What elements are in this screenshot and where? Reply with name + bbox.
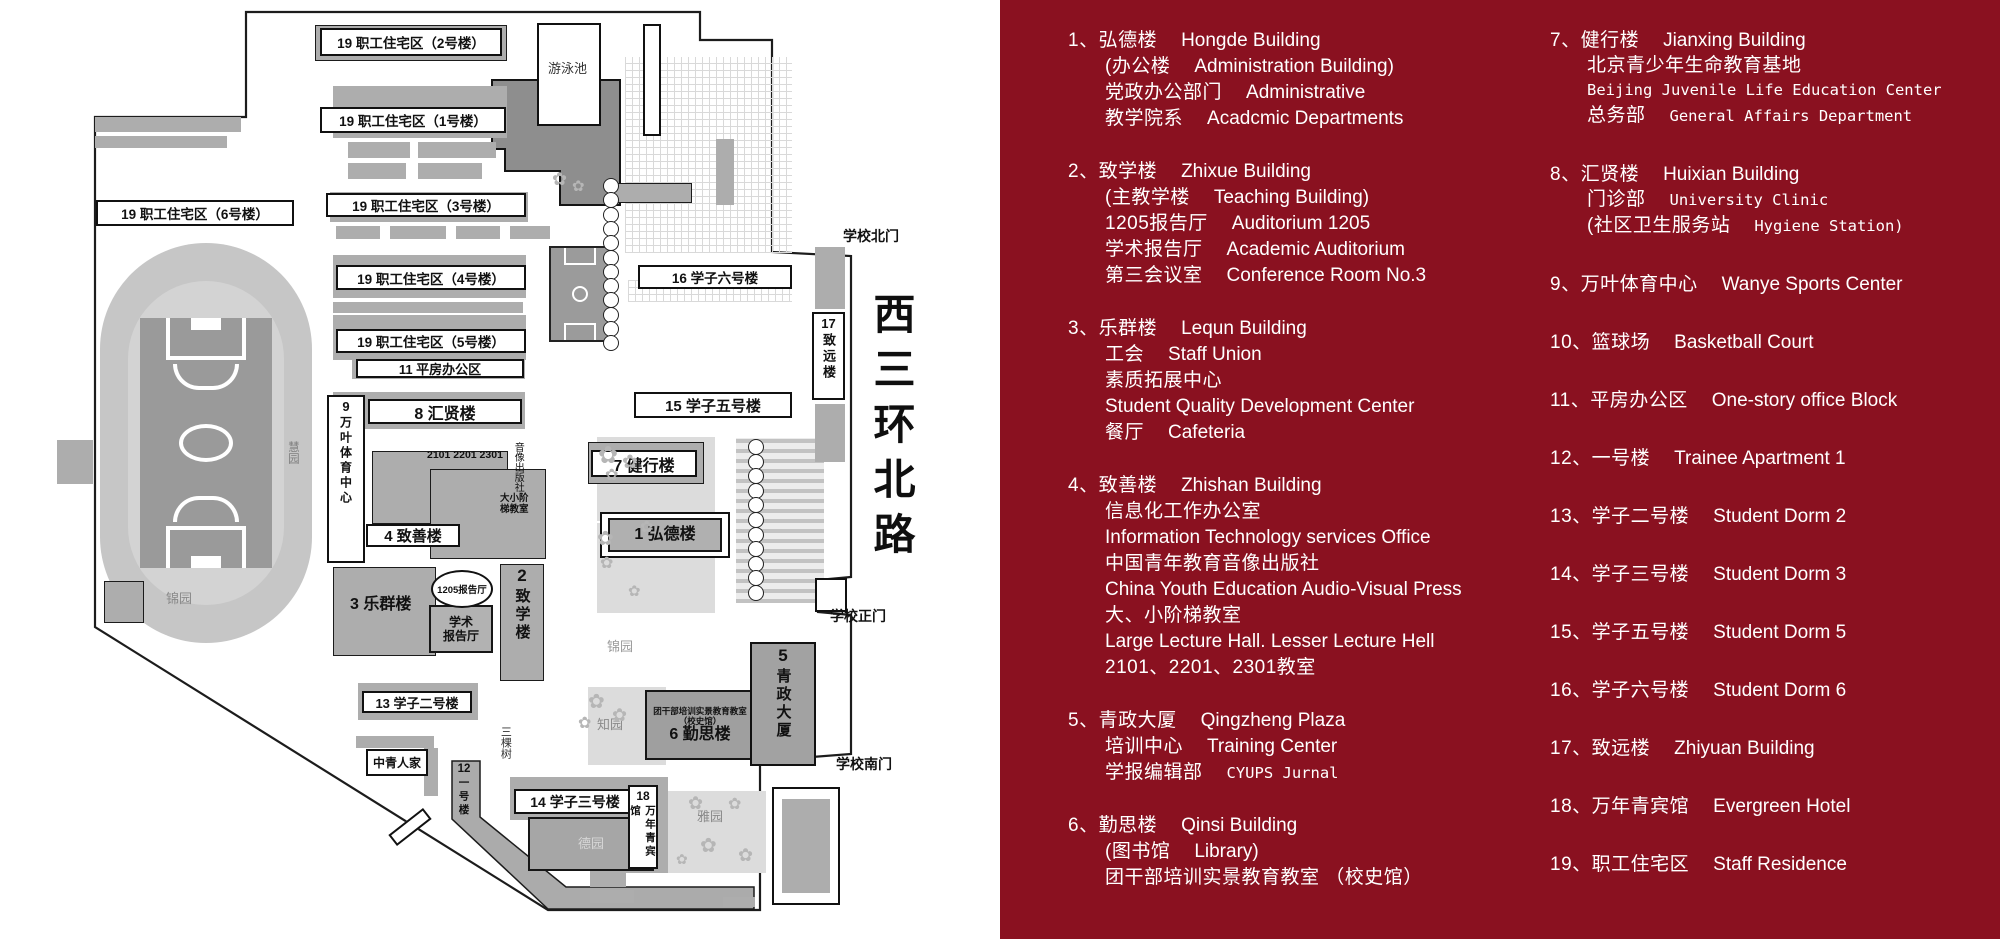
flower: ✿ [640,520,653,536]
legend-text-cn: 培训中心 [1105,736,1183,757]
label-dorm6: 16 学子六号楼 [638,265,792,289]
legend-item-8-huixian: 8、汇贤楼Huixian Building门诊部University Clini… [1550,162,1994,239]
legend-text-en: University Clinic [1670,191,1829,209]
legend-line: China Youth Education Audio-Visual Press [1068,577,1542,603]
flower: ✿ [578,716,591,732]
building-block [815,247,845,309]
tree-bubble [748,468,764,484]
flower: ✿ [700,836,717,856]
legend-text-cn: 1、弘德楼 [1068,30,1157,51]
legend-text-en: Staff Residence [1713,854,1847,875]
legend-line: 培训中心Training Center [1068,734,1542,760]
legend-text-cn: (社区卫生服务站 [1587,215,1730,236]
legend-text-en: Beijing Juvenile Life Education Center [1587,81,1942,99]
legend-line: 1、弘德楼Hongde Building [1068,28,1542,54]
campus-map: 19 职工住宅区（2号楼）19 职工住宅区（1号楼）19 职工住宅区（3号楼）1… [0,0,1000,939]
legend-line: 6、勤思楼Qinsi Building [1068,813,1542,839]
flower: ✿ [688,794,703,812]
label-dorm2: 13 学子二号楼 [362,691,472,713]
legend-line: 11、平房办公区One-story office Block [1550,388,1994,413]
legend-line: 学术报告厅Academic Auditorium [1068,237,1542,263]
legend-text-en: Qinsi Building [1181,815,1297,836]
slab [643,24,661,136]
penalty-box [166,318,246,360]
label-staff-residence-2: 19 职工住宅区（2号楼） [320,28,502,56]
tree-bubble [603,335,619,351]
legend-text-cn: (办公楼 [1105,56,1170,77]
legend-text-cn: 大、小阶梯教室 [1105,605,1242,626]
av-press-label: 音像出版社 [512,442,523,492]
road-label: 西三环北路 [868,292,915,567]
legend-line: Large Lecture Hall. Lesser Lecture Hell [1068,629,1542,655]
label-huixian: 8 汇贤楼 [368,399,522,424]
legend-item-15-dorm5: 15、学子五号楼Student Dorm 5 [1550,620,1994,645]
flower: ✿ [628,584,641,599]
legend-text-cn: 15、学子五号楼 [1550,622,1689,643]
building-number: 2 [517,566,526,586]
legend-text-en: Student Dorm 6 [1713,680,1846,701]
building-block [590,890,634,903]
legend-text-en: Cafeteria [1168,422,1245,443]
legend-text-cn: 11、平房办公区 [1550,390,1688,411]
legend-line: 学报编辑部CYUPS Jurnal [1068,760,1542,786]
tree-bubble [748,556,764,572]
tree-bubble [748,497,764,513]
building-name-vertical: 万年青宾馆 [628,805,658,867]
building-block [57,440,93,484]
legend-line: Information Technology services Office [1068,525,1542,551]
label-staff-residence-3: 19 职工住宅区（3号楼） [326,193,526,217]
legend-text-en: Evergreen Hotel [1713,796,1850,817]
tree-bubble [603,292,619,308]
tree-bubble [603,192,619,208]
label-wanye-sports: 9万叶体育中心 [327,395,365,563]
legend-item-4-zhishan: 4、致善楼Zhishan Building信息化工作办公室Information… [1068,473,1542,681]
building-number: 18 [636,789,649,803]
label-zhongqing-home: 中青人家 [366,749,428,776]
tree-bubble-column [748,439,762,600]
legend-line: 15、学子五号楼Student Dorm 5 [1550,620,1994,645]
legend-item-7-jianxing: 7、健行楼Jianxing Building北京青少年生命教育基地Beijing… [1550,28,1994,129]
penalty-box [166,526,246,568]
label-apartment1: 12一号楼 [450,761,478,825]
flower: ✿ [552,170,567,188]
building-block [815,404,845,462]
legend-text-en: Library) [1194,841,1258,862]
three-trees-label: 三棵树 [499,726,511,759]
auditorium-1205: 1205报告厅 [431,570,493,608]
legend-text-cn: 学术报告厅 [1105,239,1203,260]
legend-text-en: Hongde Building [1181,30,1320,51]
legend-text-en: Lequn Building [1181,318,1307,339]
legend-text-cn: 团干部培训实景教育教室 （校史馆） [1105,867,1423,888]
tree-bubble [748,541,764,557]
legend-text-en: One-story office Block [1712,390,1898,411]
legend-text-cn: 3、乐群楼 [1068,318,1157,339]
legend-text-cn: 1205报告厅 [1105,213,1208,234]
legend-text-en: Trainee Apartment 1 [1674,448,1845,469]
label-staff-residence-4: 19 职工住宅区（4号楼） [336,265,526,290]
building-number: 9 [342,399,349,414]
legend-text-en: Jianxing Building [1663,30,1806,51]
legend-text-cn: 13、学子二号楼 [1550,506,1689,527]
legend-line: 19、职工住宅区Staff Residence [1550,852,1994,877]
legend-text-en: CYUPS Jurnal [1227,764,1339,782]
flower: ✿ [605,468,618,484]
flower: ✿ [597,529,614,549]
campus-map-page: 19 职工住宅区（2号楼）19 职工住宅区（1号楼）19 职工住宅区（3号楼）1… [0,0,2000,939]
legend-text-cn: 工会 [1105,344,1144,365]
legend-text-cn: 14、学子三号楼 [1550,564,1689,585]
legend-line: 总务部General Affairs Department [1550,103,1994,129]
legend-item-1-hongde: 1、弘德楼Hongde Building(办公楼Administration B… [1068,28,1542,132]
legend-line: 第三会议室Conference Room No.3 [1068,263,1542,289]
legend-line: 北京青少年生命教育基地 [1550,53,1994,78]
legend-line: 门诊部University Clinic [1550,187,1994,213]
legend-text-en: Large Lecture Hall. Lesser Lecture Hell [1105,631,1435,652]
legend-text-en: Hygiene Station) [1754,217,1903,235]
legend-item-18-evergreen: 18、万年青宾馆Evergreen Hotel [1550,794,1994,819]
legend-text-cn: 第三会议室 [1105,265,1203,286]
legend-text-en: Acadcmic Departments [1207,108,1403,129]
legend-line: (图书馆Library) [1068,839,1542,865]
building-number: 17 [821,316,835,331]
lequn-label: 3 乐群楼 [350,596,411,614]
legend-text-cn: 学报编辑部 [1105,762,1203,783]
legend-text-cn: 16、学子六号楼 [1550,680,1689,701]
label-staff-residence-6: 19 职工住宅区（6号楼） [96,200,294,226]
legend-text-cn: 中国青年教育音像出版社 [1105,553,1320,574]
legend-text-cn: 19、职工住宅区 [1550,854,1689,875]
label-zhishan: 4 致善楼 [366,524,460,547]
label-zhixue: 2致学楼 [502,564,542,680]
lecture-halls-label: 大小阶 梯教室 [500,494,529,515]
legend-text-cn: 2、致学楼 [1068,161,1157,182]
legend-line: 2101、2201、2301教室 [1068,655,1542,681]
legend-line: 团干部培训实景教育教室 （校史馆） [1068,865,1542,891]
legend-text-en: Teaching Building) [1214,187,1369,208]
label-staff-residence-5: 19 职工住宅区（5号楼） [336,329,526,353]
building-block [782,799,830,893]
legend-text-en: Wanye Sports Center [1722,274,1903,295]
huiyuan-label: 慧园 [286,441,299,464]
building-block [356,736,434,748]
label-line: 团干部培训实景教育教室 [653,706,747,716]
legend-line: 18、万年青宾馆Evergreen Hotel [1550,794,1994,819]
building-name-vertical: 致远楼 [819,333,838,381]
legend-text-cn: 素质拓展中心 [1105,370,1222,391]
legend-line: 素质拓展中心 [1068,368,1542,394]
building-block [456,226,500,239]
building-block [510,226,550,239]
legend-text-cn: 信息化工作办公室 [1105,501,1261,522]
jinyuan-label-west: 锦园 [166,592,192,607]
building-block [590,871,626,887]
classrooms-2101: 2101 2201 2301 [427,450,503,462]
center-circle [179,424,233,462]
legend-text-en: Zhixue Building [1181,161,1311,182]
flower: ✿ [612,706,627,724]
legend-line: Beijing Juvenile Life Education Center [1550,78,1994,103]
legend-line: Student Quality Development Center [1068,394,1542,420]
flower: ✿ [738,846,753,864]
flower: ✿ [588,692,605,712]
label-evergreen: 18万年青宾馆 [628,785,658,869]
tree-bubble [748,527,764,543]
legend-item-16-dorm6: 16、学子六号楼Student Dorm 6 [1550,678,1994,703]
legend-item-3-lequn: 3、乐群楼Lequn Building工会Staff Union素质拓展中心St… [1068,316,1542,446]
flower: ✿ [572,179,585,194]
legend-text-cn: 17、致远楼 [1550,738,1650,759]
tree-bubble [748,585,764,601]
court-box [564,323,596,340]
label-line: （校史馆） [679,716,722,726]
legend-line: 8、汇贤楼Huixian Building [1550,162,1994,187]
legend-line: 16、学子六号楼Student Dorm 6 [1550,678,1994,703]
jinyuan-label-center: 锦园 [607,640,633,655]
building-block [348,163,406,179]
legend-text-cn: 5、青政大厦 [1068,710,1177,731]
building-block [716,139,734,205]
soccer-field [140,318,272,568]
legend-line: 工会Staff Union [1068,342,1542,368]
tree-bubble [748,439,764,455]
legend-text-cn: 教学院系 [1105,108,1183,129]
label-line: 学术 [449,615,473,629]
legend-line: 10、篮球场Basketball Court [1550,330,1994,355]
legend-item-14-dorm3: 14、学子三号楼Student Dorm 3 [1550,562,1994,587]
legend-line: 教学院系Acadcmic Departments [1068,106,1542,132]
legend-text-en: General Affairs Department [1670,107,1913,125]
label-one-story-office: 11 平房办公区 [356,359,524,378]
legend-text-cn: 18、万年青宾馆 [1550,796,1689,817]
building-block [612,183,692,203]
legend-line: 2、致学楼Zhixue Building [1068,159,1542,185]
pool-label: 游泳池 [548,62,587,77]
building-block [418,163,482,179]
legend-line: 3、乐群楼Lequn Building [1068,316,1542,342]
legend-line: 5、青政大厦Qingzheng Plaza [1068,708,1542,734]
building-block [95,136,227,148]
legend-item-9-wanye: 9、万叶体育中心Wanye Sports Center [1550,272,1994,297]
building-number: 5 [778,646,787,666]
legend-text-en: Zhiyuan Building [1674,738,1814,759]
legend-item-5-qingzheng: 5、青政大厦Qingzheng Plaza培训中心Training Center… [1068,708,1542,786]
legend-text-en: Student Dorm 3 [1713,564,1846,585]
flower: ✿ [622,453,638,472]
label-line: 6 勤思楼 [669,726,730,745]
legend-column-1: 1、弘德楼Hongde Building(办公楼Administration B… [1068,28,1542,918]
legend-text-en: Administration Building) [1194,56,1394,77]
academic-auditorium: 学术报告厅 [429,605,493,653]
label-hongde: 1 弘德楼 [608,518,722,552]
legend-line: 餐厅Cafeteria [1068,420,1542,446]
flower: ✿ [600,556,613,572]
flower: ✿ [728,797,741,813]
legend-line: 13、学子二号楼Student Dorm 2 [1550,504,1994,529]
legend-text-en: Staff Union [1168,344,1262,365]
penalty-arc [173,496,239,522]
label-line: 报告厅 [443,629,479,643]
basketball-court [549,246,610,342]
legend-line: 4、致善楼Zhishan Building [1068,473,1542,499]
building-block [336,226,380,239]
legend-line: 12、一号楼Trainee Apartment 1 [1550,446,1994,471]
building-block [348,142,410,158]
label-dorm3: 14 学子三号楼 [514,789,636,814]
building-name-vertical: 一号楼 [457,777,472,818]
penalty-arc [173,364,239,390]
legend-line: 信息化工作办公室 [1068,499,1542,525]
building-name-vertical: 青政大厦 [773,668,794,740]
tree-bubble [748,454,764,470]
building-block [104,581,144,623]
building-block [95,117,241,132]
legend-text-en: Administrative [1246,82,1365,103]
legend-text-en: Student Dorm 5 [1713,622,1846,643]
legend-line: 9、万叶体育中心Wanye Sports Center [1550,272,1994,297]
legend-column-2: 7、健行楼Jianxing Building北京青少年生命教育基地Beijing… [1550,28,1994,910]
tree-bubble [748,570,764,586]
tree-bubble [748,512,764,528]
legend-item-17-zhiyuan: 17、致远楼Zhiyuan Building [1550,736,1994,761]
tree-bubble [603,235,619,251]
legend-text-en: Information Technology services Office [1105,527,1431,548]
legend-text-cn: 北京青少年生命教育基地 [1587,55,1802,76]
main-gate-booth [815,578,847,612]
tree-bubble-column [603,178,617,350]
legend-line: 1205报告厅Auditorium 1205 [1068,211,1542,237]
legend-line: (主教学楼Teaching Building) [1068,185,1542,211]
legend-text-en: Academic Auditorium [1227,239,1405,260]
legend-text-en: Student Dorm 2 [1713,506,1846,527]
south-gate-label: 学校南门 [836,757,892,773]
legend-text-cn: (主教学楼 [1105,187,1190,208]
tree-bubble [748,483,764,499]
legend-text-cn: 4、致善楼 [1068,475,1157,496]
legend-text-en: Conference Room No.3 [1227,265,1427,286]
building-block [418,142,496,158]
legend-text-cn: 门诊部 [1587,189,1646,210]
flower: ✿ [676,852,688,866]
legend-item-6-qinsi: 6、勤思楼Qinsi Building(图书馆Library)团干部培训实景教育… [1068,813,1542,891]
flower: ✿ [598,444,618,468]
building-block [333,302,523,313]
legend-item-2-zhixue: 2、致学楼Zhixue Building(主教学楼Teaching Buildi… [1068,159,1542,289]
north-gate-label: 学校北门 [843,229,899,245]
legend-text-cn: 8、汇贤楼 [1550,164,1639,185]
legend-line: 大、小阶梯教室 [1068,603,1542,629]
legend-panel: 1、弘德楼Hongde Building(办公楼Administration B… [1000,0,2000,939]
legend-text-en: China Youth Education Audio-Visual Press [1105,579,1462,600]
building-name-vertical: 万叶体育中心 [338,416,355,506]
court-circle [572,286,588,302]
legend-item-10-basketball: 10、篮球场Basketball Court [1550,330,1994,355]
legend-text-en: Auditorium 1205 [1232,213,1370,234]
legend-text-en: Student Quality Development Center [1105,396,1414,417]
legend-text-en: Qingzheng Plaza [1201,710,1346,731]
legend-text-cn: 10、篮球场 [1550,332,1650,353]
qinsi-building: 团干部培训实景教育教室（校史馆）6 勤思楼 [645,690,755,760]
building-name-vertical: 致学楼 [512,588,533,642]
main-gate-label: 学校正门 [830,609,886,625]
legend-item-13-dorm2: 13、学子二号楼Student Dorm 2 [1550,504,1994,529]
label-zhiyuan-bldg: 17致远楼 [812,312,845,400]
legend-text-cn: 2101、2201、2301教室 [1105,657,1316,678]
legend-text-en: Training Center [1207,736,1337,757]
legend-item-19-staff: 19、职工住宅区Staff Residence [1550,852,1994,877]
label-dorm5: 15 学子五号楼 [634,392,792,418]
legend-text-en: Basketball Court [1674,332,1813,353]
legend-text-cn: 餐厅 [1105,422,1144,443]
building-number: 12 [458,763,471,775]
legend-text-cn: 6、勤思楼 [1068,815,1157,836]
label-line: 德园 [578,836,604,851]
building-block [723,897,755,907]
legend-item-12-apartment1: 12、一号楼Trainee Apartment 1 [1550,446,1994,471]
legend-text-cn: 7、健行楼 [1550,30,1639,51]
legend-line: (社区卫生服务站Hygiene Station) [1550,213,1994,239]
legend-line: (办公楼Administration Building) [1068,54,1542,80]
legend-line: 中国青年教育音像出版社 [1068,551,1542,577]
legend-item-11-one-story: 11、平房办公区One-story office Block [1550,388,1994,413]
legend-text-cn: 总务部 [1587,105,1646,126]
legend-line: 党政办公部门Administrative [1068,80,1542,106]
legend-text-cn: 12、一号楼 [1550,448,1650,469]
building-block [390,226,446,239]
court-box [564,248,596,265]
legend-text-en: Zhishan Building [1181,475,1321,496]
legend-line: 7、健行楼Jianxing Building [1550,28,1994,53]
legend-text-en: Huixian Building [1663,164,1799,185]
legend-text-cn: (图书馆 [1105,841,1170,862]
legend-text-cn: 9、万叶体育中心 [1550,274,1698,295]
legend-text-cn: 党政办公部门 [1105,82,1222,103]
label-staff-residence-1: 19 职工住宅区（1号楼） [320,107,506,133]
legend-line: 17、致远楼Zhiyuan Building [1550,736,1994,761]
legend-line: 14、学子三号楼Student Dorm 3 [1550,562,1994,587]
label-qingzheng: 5青政大厦 [750,642,816,766]
